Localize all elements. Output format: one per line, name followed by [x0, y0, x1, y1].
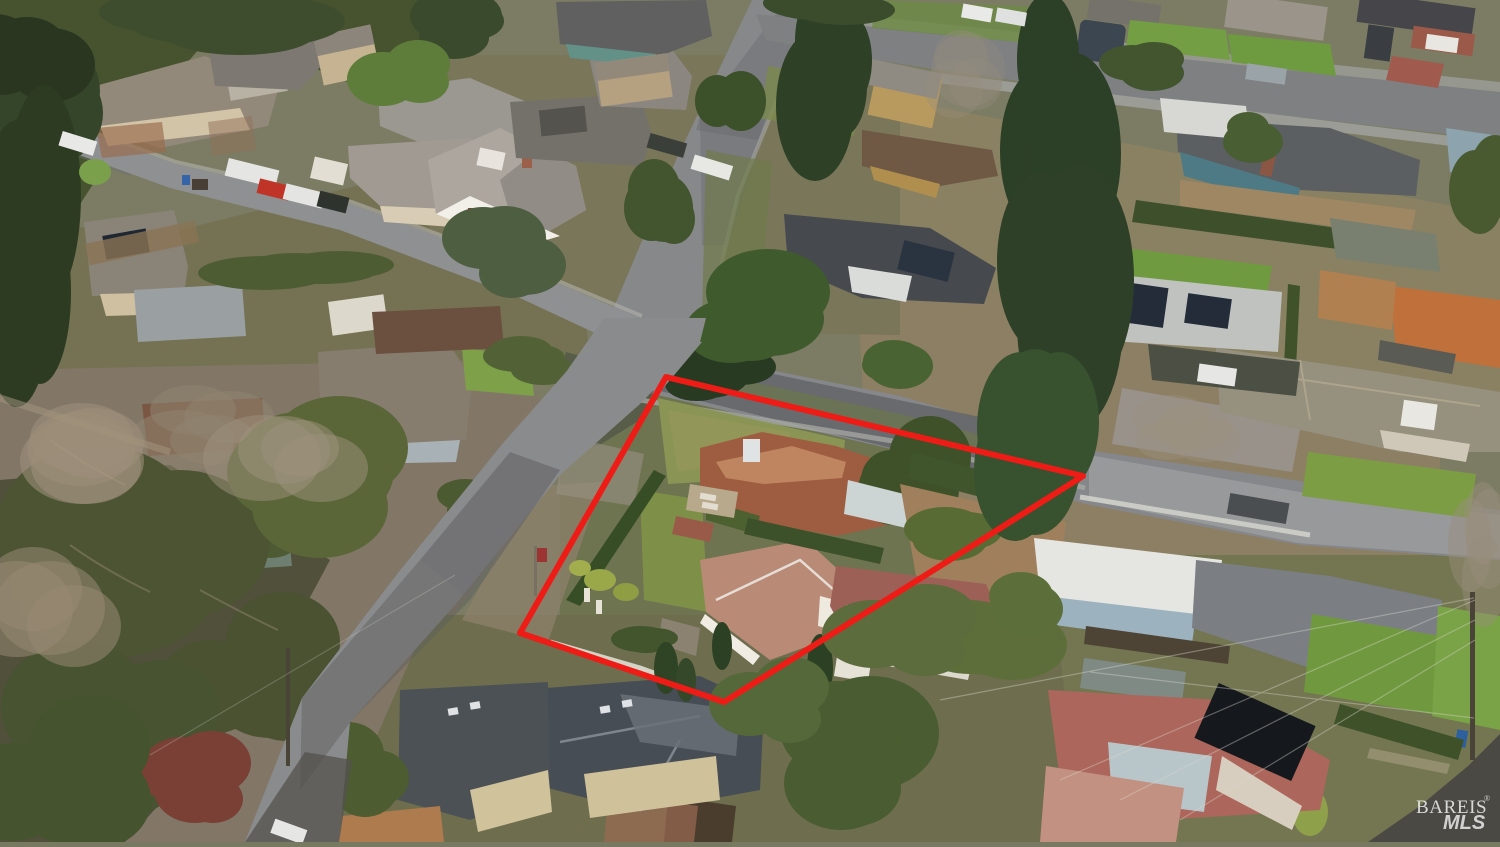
svg-text:MLS: MLS [1443, 812, 1486, 834]
svg-text:®: ® [1484, 794, 1490, 803]
